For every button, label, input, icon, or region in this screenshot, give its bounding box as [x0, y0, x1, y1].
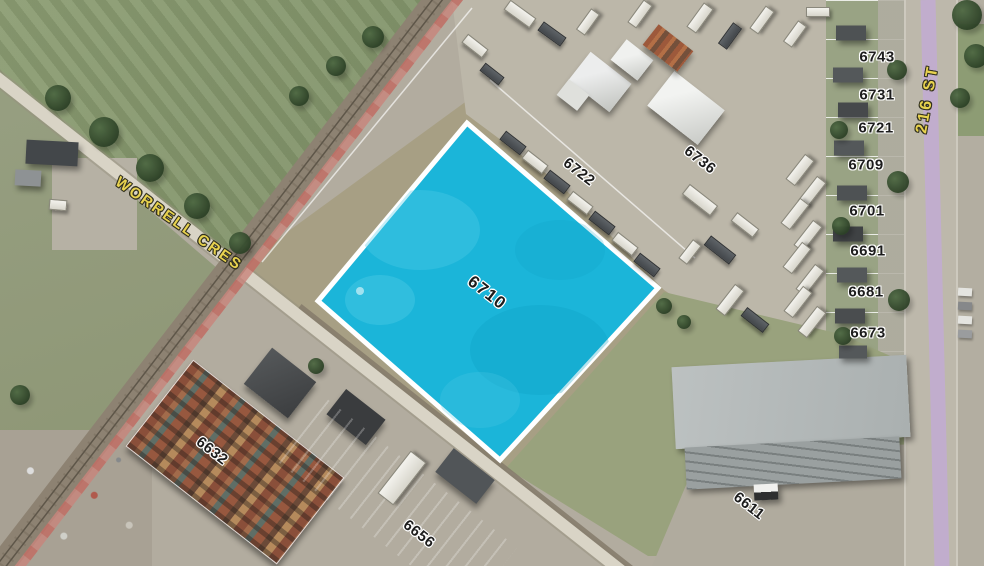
lot-label: 6731: [859, 87, 894, 104]
house-roof: [838, 103, 868, 118]
tree: [136, 154, 164, 182]
warehouse-roof: [672, 355, 911, 449]
tree: [677, 315, 691, 329]
tree: [656, 298, 672, 314]
house-roof: [836, 26, 866, 41]
aerial-map-canvas: 6743 6731 6721 6709 6701 6691 6681 6673 …: [0, 0, 984, 566]
tree: [952, 0, 982, 30]
parked-car: [958, 302, 972, 311]
tree: [10, 385, 30, 405]
parked-car: [958, 330, 972, 339]
farm-building-roof: [25, 140, 78, 167]
lot-label: 6721: [858, 120, 893, 137]
house-roof: [839, 346, 867, 359]
lot-label: 6701: [849, 203, 884, 220]
house-roof: [834, 141, 864, 156]
tree: [830, 121, 848, 139]
tree: [89, 117, 119, 147]
lot-label: 6673: [850, 325, 885, 342]
lot-label: 6743: [859, 49, 894, 66]
small-shed: [754, 483, 779, 500]
house-roof: [837, 268, 867, 283]
house-roof: [837, 186, 867, 201]
tree: [964, 44, 984, 68]
tree: [888, 289, 910, 311]
truck: [806, 7, 830, 17]
tree: [45, 85, 71, 111]
farm-shed-roof: [15, 169, 42, 186]
lot-label: 6709: [848, 157, 883, 174]
house-roof: [835, 309, 865, 324]
house-roof: [833, 68, 863, 83]
parked-car: [958, 288, 972, 297]
farm-truck: [49, 199, 68, 212]
tree: [832, 217, 850, 235]
tree: [184, 193, 210, 219]
tree: [308, 358, 324, 374]
tree: [289, 86, 309, 106]
tree: [950, 88, 970, 108]
tree: [326, 56, 346, 76]
tree: [362, 26, 384, 48]
lot-label: 6681: [848, 284, 883, 301]
tree: [887, 171, 909, 193]
tree: [834, 327, 852, 345]
lot-label: 6691: [850, 243, 885, 260]
parked-car: [958, 316, 972, 325]
